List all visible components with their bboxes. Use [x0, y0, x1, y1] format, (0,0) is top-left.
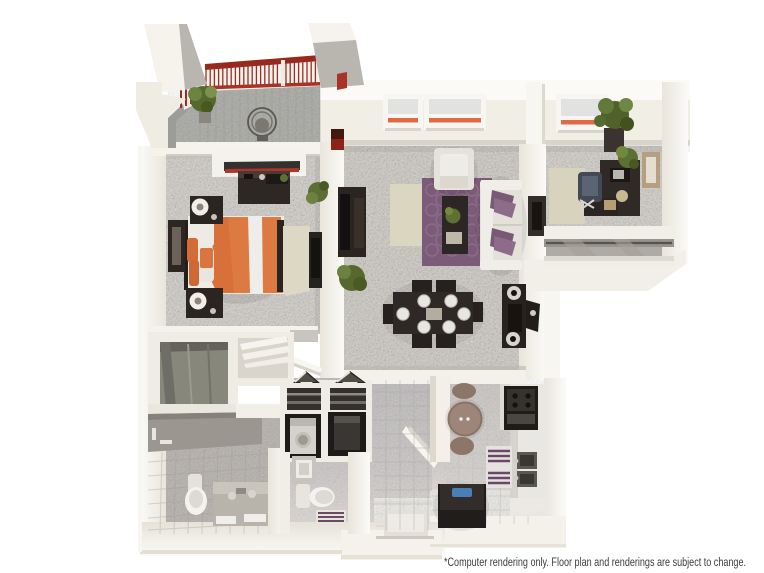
svg-text:*Computer rendering only. Floo: *Computer rendering only. Floor plan and… — [444, 555, 746, 569]
